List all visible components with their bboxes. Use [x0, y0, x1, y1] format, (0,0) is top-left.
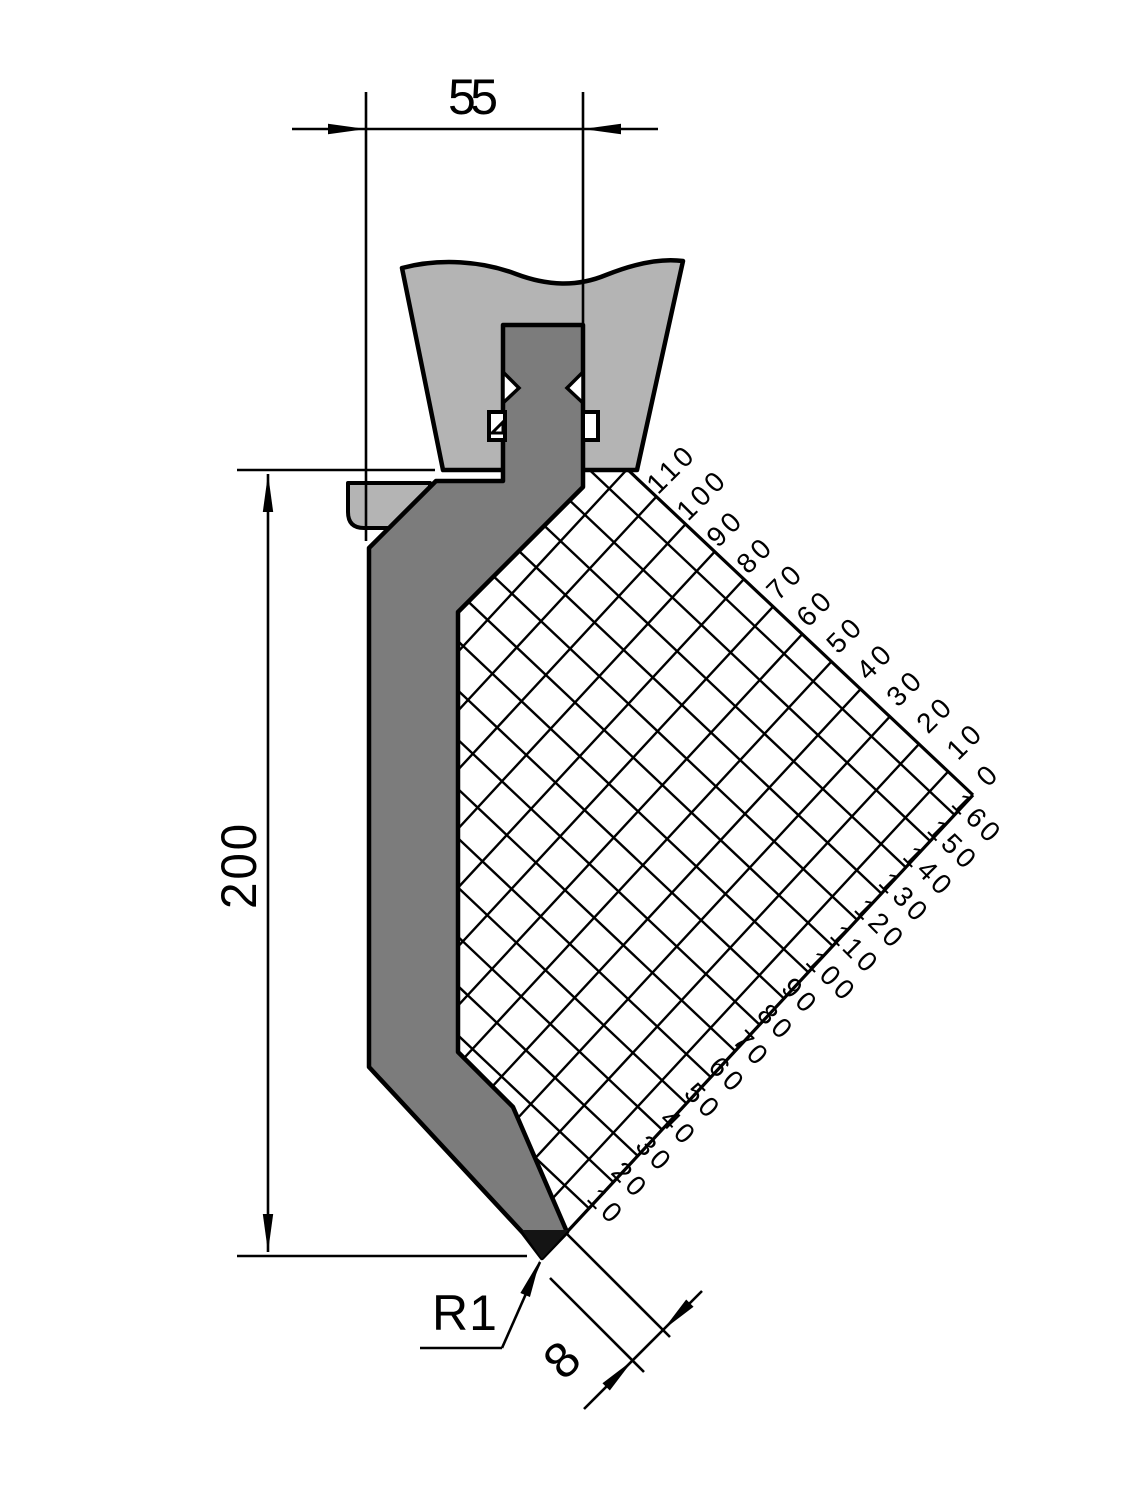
drawing-canvas: 0102030405060708090100110160150140130120… [0, 0, 1124, 1500]
dim-left-height-value: 200 [211, 821, 267, 909]
clamp-hole-right [583, 412, 598, 440]
dim-top-width-value: 55 [448, 69, 500, 125]
dim-tip-radius-value: R1 [432, 1285, 498, 1341]
technical-drawing: 0102030405060708090100110160150140130120… [0, 0, 1124, 1500]
